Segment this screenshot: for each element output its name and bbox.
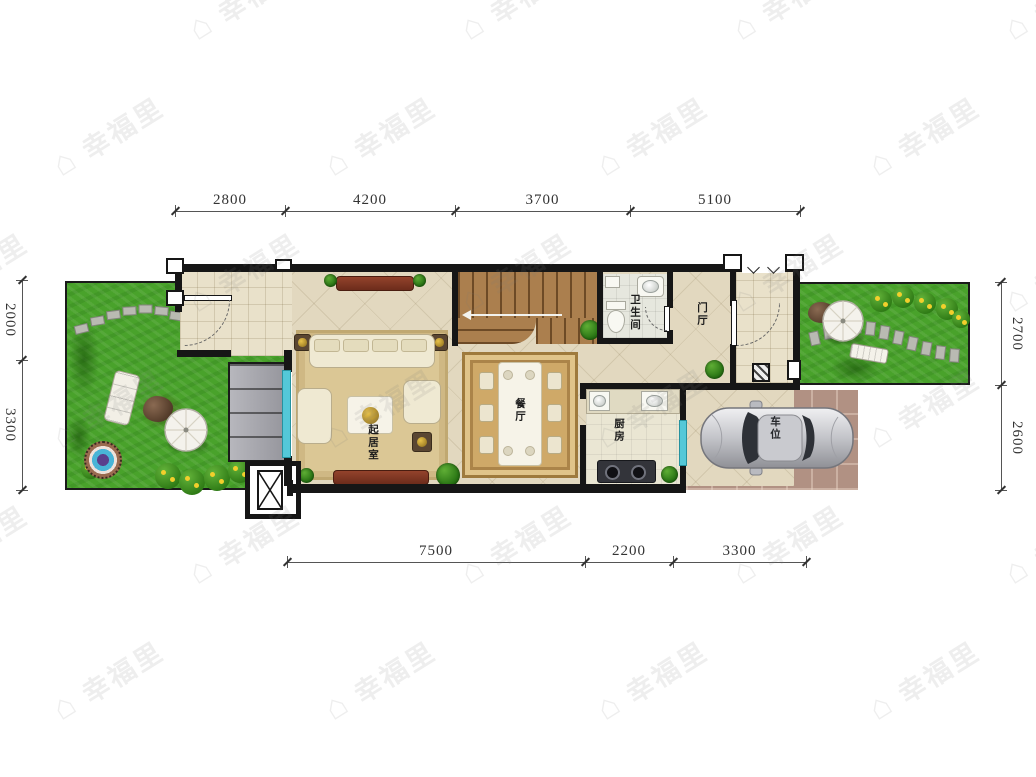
watermark: 幸福里	[589, 86, 714, 185]
watermark: 幸福里	[0, 0, 34, 49]
wall-kitchen-top	[580, 383, 686, 389]
place-setting	[503, 446, 513, 456]
watermark-text: 幸福里	[890, 630, 987, 711]
flower-bush	[870, 290, 892, 312]
watermark-text: 幸福里	[1026, 494, 1036, 575]
wall-bottom	[288, 484, 686, 493]
sink-bowl	[646, 395, 664, 408]
house-icon	[317, 683, 358, 729]
dim-line	[175, 211, 800, 212]
wall-window-stub-bottom	[284, 456, 292, 486]
watermark-text: 幸福里	[618, 86, 715, 167]
tray	[362, 407, 379, 424]
wall-entry-bottom	[680, 383, 800, 390]
watermark-text: 幸福里	[346, 86, 443, 167]
armchair-right	[403, 380, 441, 424]
house-icon	[181, 547, 222, 593]
wall-pier	[166, 290, 184, 306]
house-icon	[861, 411, 902, 457]
stove	[597, 460, 656, 483]
wall-pier	[785, 254, 804, 271]
watermark-text: 幸福里	[754, 0, 851, 31]
watermark: 幸福里	[861, 86, 986, 185]
potted-plant	[661, 466, 678, 483]
watermark-text: 幸福里	[210, 0, 307, 31]
dim-label: 2800	[175, 192, 285, 209]
watermark-text: 幸福里	[346, 630, 443, 711]
dim-label: 2600	[1008, 385, 1025, 490]
wall-kitchen-left-lower	[580, 425, 586, 491]
appliance-door	[593, 395, 606, 408]
watermark: 幸福里	[0, 494, 34, 593]
kitchen-appliance	[589, 391, 610, 411]
house-icon	[589, 139, 630, 185]
room-label-dining: 餐厅	[513, 398, 528, 434]
house-icon	[861, 139, 902, 185]
potted-plant	[413, 274, 426, 287]
dim-label: 4200	[285, 192, 455, 209]
watermark: 幸福里	[317, 86, 442, 185]
wall-living-stairs	[452, 268, 458, 346]
watermark-text: 幸福里	[74, 86, 171, 167]
burner	[605, 465, 620, 480]
watermark-text: 幸福里	[618, 630, 715, 711]
flower-bush	[914, 292, 936, 314]
dim-line	[22, 280, 23, 490]
console-table	[336, 276, 414, 291]
dim-label: 5100	[630, 192, 800, 209]
sofa-cushion	[372, 339, 398, 352]
side-table	[412, 432, 432, 452]
kitchen-sink	[641, 391, 668, 411]
dim-label: 3300	[1, 360, 18, 490]
potted-plant	[299, 468, 314, 483]
watermark: 幸福里	[997, 494, 1036, 593]
wall-bath-right-upper	[667, 268, 673, 308]
wall-bath-left	[597, 268, 603, 344]
house-icon	[997, 547, 1036, 593]
dining-chair	[479, 372, 494, 390]
watermark: 幸福里	[453, 0, 578, 49]
place-setting	[503, 370, 513, 380]
watermark-text: 幸福里	[1026, 0, 1036, 31]
watermark-text: 幸福里	[0, 0, 34, 31]
watermark-text: 幸福里	[1026, 222, 1036, 303]
window-kitchen-east	[679, 420, 687, 466]
place-setting	[525, 446, 535, 456]
house-icon	[45, 683, 86, 729]
umbrella	[163, 407, 209, 453]
place-setting	[525, 370, 535, 380]
dining-chair	[547, 372, 562, 390]
watermark: 幸福里	[45, 86, 170, 185]
dining-chair	[479, 404, 494, 422]
house-icon	[317, 139, 358, 185]
potted-plant	[705, 360, 724, 379]
wall-window-stub-top	[284, 350, 292, 372]
wall-kitchen-left-upper	[580, 383, 586, 399]
watermark: 幸福里	[725, 0, 850, 49]
flower-bush	[204, 465, 230, 491]
house-icon	[453, 3, 494, 49]
sink-bowl	[642, 280, 660, 293]
house-icon	[861, 683, 902, 729]
wall-pier	[166, 258, 184, 274]
watermark-text: 幸福里	[482, 0, 579, 31]
watermark-text: 幸福里	[890, 86, 987, 167]
stair-direction-line	[470, 314, 562, 316]
watermark: 幸福里	[317, 630, 442, 729]
wall-left-lower	[177, 350, 231, 357]
window-living-west	[282, 370, 291, 458]
wall-entry-left-lower	[730, 344, 736, 390]
watermark: 幸福里	[45, 630, 170, 729]
wall-pier	[275, 259, 292, 271]
dim-line	[287, 562, 806, 563]
dining-chair	[547, 436, 562, 454]
staircase	[458, 272, 597, 318]
dim-label: 7500	[287, 543, 585, 560]
room-label-bath: 卫生间	[628, 294, 643, 342]
stair-direction-arrow	[462, 310, 471, 320]
outdoor-steps	[228, 362, 288, 462]
house-icon	[997, 3, 1036, 49]
watermark: 幸福里	[997, 0, 1036, 49]
dim-label: 2200	[585, 543, 673, 560]
house-icon	[181, 3, 222, 49]
toilet-tank	[606, 301, 626, 310]
house-icon	[45, 139, 86, 185]
house-icon	[725, 3, 766, 49]
wall-bath-right-lower	[667, 330, 673, 344]
watermark: 幸福里	[861, 630, 986, 729]
house-icon	[589, 683, 630, 729]
burner	[631, 465, 646, 480]
dining-chair	[479, 436, 494, 454]
bath-shelf	[605, 276, 620, 288]
dim-label: 3700	[455, 192, 630, 209]
sofa-cushion	[314, 339, 340, 352]
wall-pier	[787, 360, 801, 380]
flower-bush	[952, 310, 970, 328]
watermark: 幸福里	[589, 630, 714, 729]
dim-label: 2700	[1008, 282, 1025, 385]
armchair-left	[297, 388, 332, 444]
masonry-column	[752, 363, 770, 382]
watermark-text: 幸福里	[74, 630, 171, 711]
room-label-living: 起居室	[366, 424, 381, 476]
flower-bush	[179, 469, 205, 495]
floorplan-canvas: 车位	[0, 0, 1036, 777]
sofa-main	[309, 334, 435, 368]
room-label-kitchen: 厨房	[612, 418, 627, 454]
tv-console	[333, 470, 429, 485]
dim-label: 2000	[1, 280, 18, 360]
dining-chair	[547, 404, 562, 422]
potted-plant	[324, 274, 337, 287]
watermark-text: 幸福里	[0, 494, 34, 575]
sofa-cushion	[343, 339, 369, 352]
flower-bush	[892, 286, 914, 308]
wall-pier	[723, 254, 742, 271]
wall-top	[175, 264, 800, 272]
mosaic-fountain	[84, 441, 122, 479]
sofa-cushion	[401, 339, 427, 352]
room-label-parking: 车位	[768, 416, 783, 456]
room-label-hall: 门厅	[695, 302, 710, 338]
staircase-landing	[458, 318, 536, 344]
watermark: 幸福里	[181, 0, 306, 49]
flower-bush	[155, 463, 181, 489]
dim-label: 3300	[673, 543, 806, 560]
umbrella	[821, 299, 865, 343]
